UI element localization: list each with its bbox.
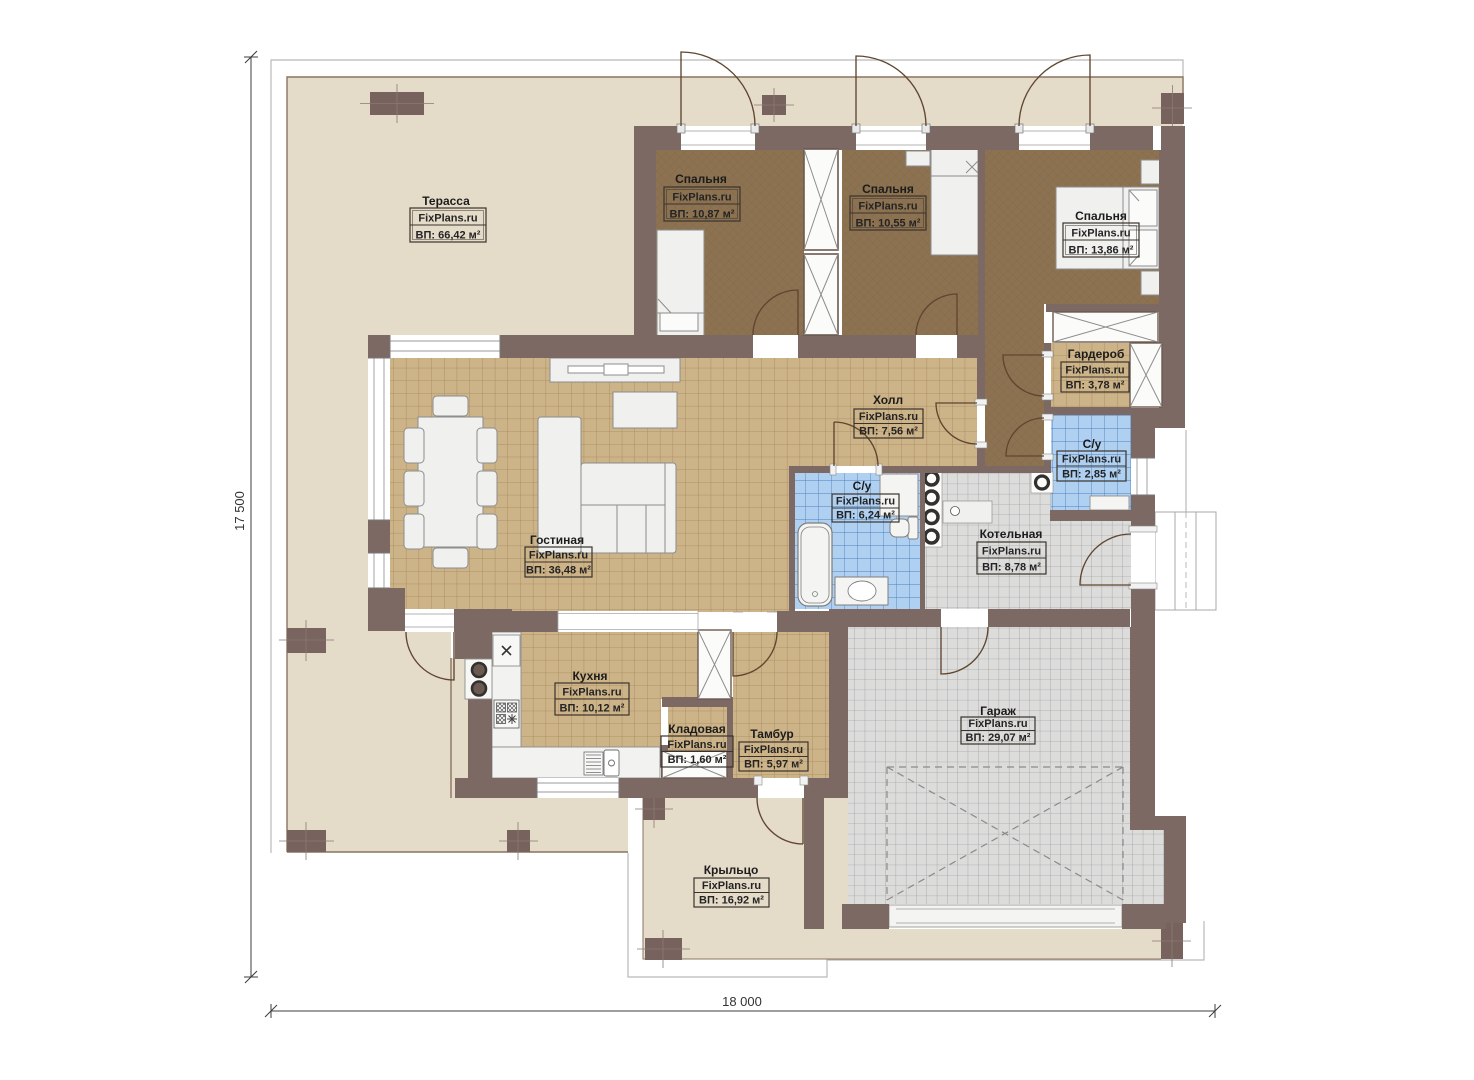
svg-text:Крыльцо: Крыльцо	[704, 863, 759, 877]
svg-text:FixPlans.ru: FixPlans.ru	[744, 744, 803, 756]
svg-text:Терасса: Терасса	[422, 194, 470, 208]
svg-text:ВП: 10,12 м²: ВП: 10,12 м²	[560, 703, 625, 715]
svg-text:FixPlans.ru: FixPlans.ru	[672, 192, 731, 204]
svg-text:ВП: 29,07 м²: ВП: 29,07 м²	[966, 732, 1031, 744]
svg-text:ВП: 6,24 м²: ВП: 6,24 м²	[836, 510, 895, 522]
svg-text:Кухня: Кухня	[572, 669, 607, 683]
svg-text:Котельная: Котельная	[980, 527, 1043, 541]
svg-text:ВП: 13,86 м²: ВП: 13,86 м²	[1069, 245, 1134, 257]
svg-text:С/у: С/у	[1083, 437, 1102, 451]
svg-text:Гардероб: Гардероб	[1068, 347, 1125, 361]
svg-text:Холл: Холл	[873, 393, 903, 407]
svg-text:ВП: 2,85 м²: ВП: 2,85 м²	[1062, 469, 1121, 481]
svg-text:FixPlans.ru: FixPlans.ru	[418, 213, 477, 225]
svg-text:FixPlans.ru: FixPlans.ru	[968, 718, 1027, 730]
svg-text:Тамбур: Тамбур	[750, 727, 794, 741]
svg-text:FixPlans.ru: FixPlans.ru	[836, 496, 895, 508]
svg-text:18 000: 18 000	[722, 994, 762, 1009]
svg-text:ВП: 16,92 м²: ВП: 16,92 м²	[699, 895, 764, 907]
svg-text:ВП: 1,60 м²: ВП: 1,60 м²	[668, 754, 727, 766]
svg-text:FixPlans.ru: FixPlans.ru	[1062, 454, 1121, 466]
svg-text:Спальня: Спальня	[675, 172, 727, 186]
svg-text:FixPlans.ru: FixPlans.ru	[667, 739, 726, 751]
svg-text:ВП: 5,97 м²: ВП: 5,97 м²	[744, 759, 803, 771]
svg-text:Спальня: Спальня	[862, 182, 914, 196]
svg-text:ВП: 36,48 м²: ВП: 36,48 м²	[526, 565, 591, 577]
svg-text:ВП: 3,78 м²: ВП: 3,78 м²	[1066, 380, 1125, 392]
svg-text:FixPlans.ru: FixPlans.ru	[982, 546, 1041, 558]
svg-text:ВП: 8,78 м²: ВП: 8,78 м²	[982, 562, 1041, 574]
svg-text:ВП: 10,55 м²: ВП: 10,55 м²	[856, 218, 921, 230]
svg-text:ВП: 66,42 м²: ВП: 66,42 м²	[416, 230, 481, 242]
svg-text:FixPlans.ru: FixPlans.ru	[529, 550, 588, 562]
svg-text:ВП: 10,87 м²: ВП: 10,87 м²	[670, 209, 735, 221]
svg-text:С/у: С/у	[853, 479, 872, 493]
svg-text:FixPlans.ru: FixPlans.ru	[859, 411, 918, 423]
svg-text:Гостиная: Гостиная	[530, 533, 584, 547]
svg-text:Спальня: Спальня	[1075, 209, 1127, 223]
svg-text:FixPlans.ru: FixPlans.ru	[1071, 228, 1130, 240]
svg-text:FixPlans.ru: FixPlans.ru	[858, 201, 917, 213]
svg-text:Кладовая: Кладовая	[668, 722, 725, 736]
svg-text:17 500: 17 500	[232, 491, 247, 531]
svg-text:FixPlans.ru: FixPlans.ru	[1065, 365, 1124, 377]
svg-text:FixPlans.ru: FixPlans.ru	[562, 687, 621, 699]
svg-text:Гараж: Гараж	[980, 704, 1016, 718]
svg-text:FixPlans.ru: FixPlans.ru	[702, 880, 761, 892]
svg-text:ВП: 7,56 м²: ВП: 7,56 м²	[859, 426, 918, 438]
